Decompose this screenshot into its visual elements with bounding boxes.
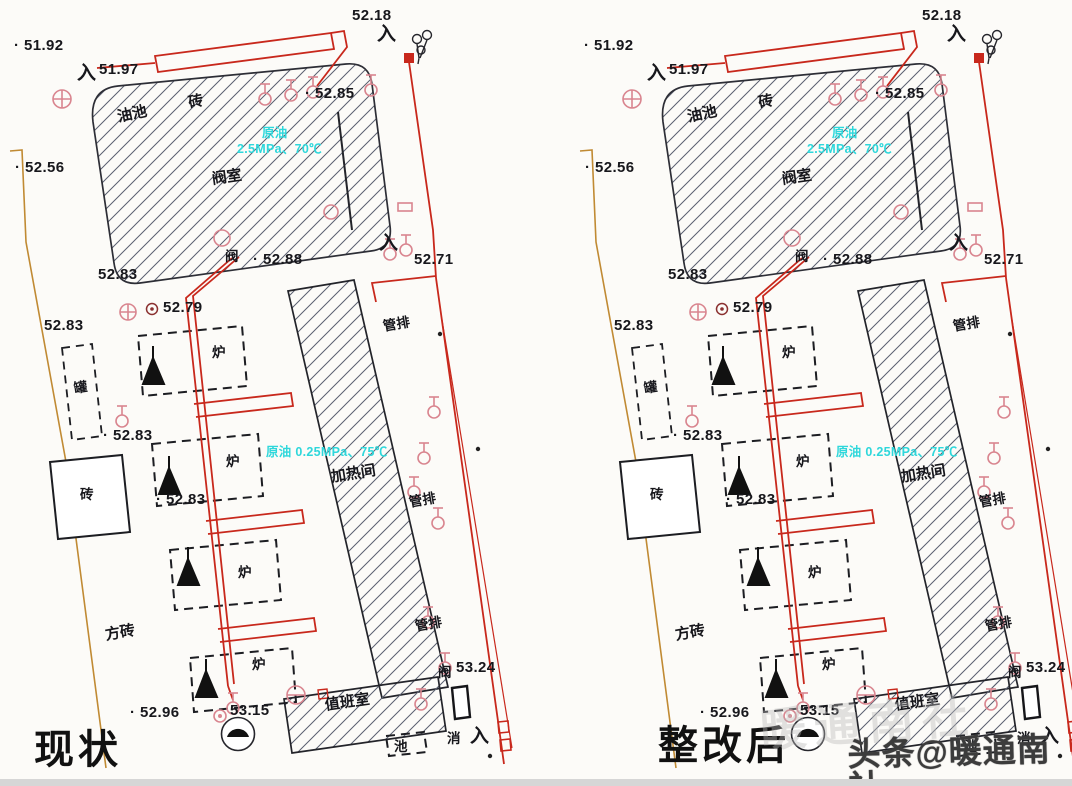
plan-label: · 52.96 xyxy=(130,705,180,720)
plan-label: · 52.88 xyxy=(823,252,873,267)
plan-label: 阀室 xyxy=(211,168,243,187)
plan-label: 池 xyxy=(394,740,408,754)
plan-label: 入 xyxy=(470,727,489,746)
plan-label: 入 xyxy=(77,64,96,83)
plan-label: 炉 xyxy=(212,346,226,360)
plan-label: · 52.83 xyxy=(156,492,206,507)
screenshot-canvas: · 51.92入51.9752.18入· 52.85油池砖原油2.5MPa、70… xyxy=(0,0,1072,786)
plan-label: 入 xyxy=(647,64,666,83)
caption-current: 现状 xyxy=(34,730,122,770)
plan-label: 罐 xyxy=(643,380,658,395)
plan-label: 阀室 xyxy=(781,168,813,187)
plan-label: 炉 xyxy=(782,346,796,360)
plan-label: 53.24 xyxy=(1026,660,1066,675)
plan-label: 炉 xyxy=(796,455,810,469)
plan-label: 原油 0.25MPa、75℃ xyxy=(266,446,388,459)
plan-label: 炉 xyxy=(252,658,266,672)
plan-label: 原油 0.25MPa、75℃ xyxy=(836,446,958,459)
plan-label: 52.83 xyxy=(44,318,84,333)
plan-label: 52.18 xyxy=(352,8,392,23)
plan-label: 入 xyxy=(377,25,396,44)
plan-label: 53.24 xyxy=(456,660,496,675)
plan-label: 炉 xyxy=(226,455,240,469)
plan-label: 砖 xyxy=(650,488,664,502)
plan-label: · 52.85 xyxy=(305,86,355,101)
plan-label: 阀 xyxy=(1008,666,1022,680)
plan-label: 52.71 xyxy=(984,252,1024,267)
plan-label: · 52.96 xyxy=(700,705,750,720)
plan-label: 51.97 xyxy=(669,62,709,77)
plan-label: 砖 xyxy=(757,93,775,111)
plan-label: 炉 xyxy=(808,566,822,580)
plan-label: 2.5MPa、70℃ xyxy=(807,143,892,156)
site-plan-svg xyxy=(0,0,1072,786)
plan-label: 原油 xyxy=(262,127,288,140)
plan-label: 52.79 xyxy=(733,300,773,315)
plan-label: 52.71 xyxy=(414,252,454,267)
plan-label: · 52.83 xyxy=(726,492,776,507)
plan-label: 炉 xyxy=(238,566,252,580)
plan-label: · 51.92 xyxy=(14,38,64,53)
plan-label: · 52.83 xyxy=(103,428,153,443)
bottom-edge-strip xyxy=(0,779,1072,786)
plan-label: 53.15 xyxy=(230,703,270,718)
plan-label: · 52.88 xyxy=(253,252,303,267)
plan-label: · 52.83 xyxy=(673,428,723,443)
plan-label: 2.5MPa、70℃ xyxy=(237,143,322,156)
plan-label: 入 xyxy=(379,234,398,253)
plan-label: 阀 xyxy=(795,250,809,264)
plan-label: · 51.92 xyxy=(584,38,634,53)
plan-label: 砖 xyxy=(187,93,205,111)
plan-label: 52.18 xyxy=(922,8,962,23)
plan-label: 52.79 xyxy=(163,300,203,315)
plan-label: · 52.56 xyxy=(585,160,635,175)
plan-label: 阀 xyxy=(438,666,452,680)
plan-label: 罐 xyxy=(73,380,88,395)
plan-label: 原油 xyxy=(832,127,858,140)
plan-label: 51.97 xyxy=(99,62,139,77)
plan-label: 消 xyxy=(447,732,461,746)
plan-label: 入 xyxy=(947,25,966,44)
plan-label: · 52.85 xyxy=(875,86,925,101)
plan-label: · 52.56 xyxy=(15,160,65,175)
plan-label: 入 xyxy=(949,234,968,253)
plan-label: 炉 xyxy=(822,658,836,672)
plan-label: 阀 xyxy=(225,250,239,264)
plan-label: 52.83 xyxy=(668,267,708,282)
plan-label: 52.83 xyxy=(614,318,654,333)
plan-label: 52.83 xyxy=(98,267,138,282)
plan-label: 砖 xyxy=(80,488,94,502)
watermark-text: 头条@暖通南社 xyxy=(847,732,1072,786)
